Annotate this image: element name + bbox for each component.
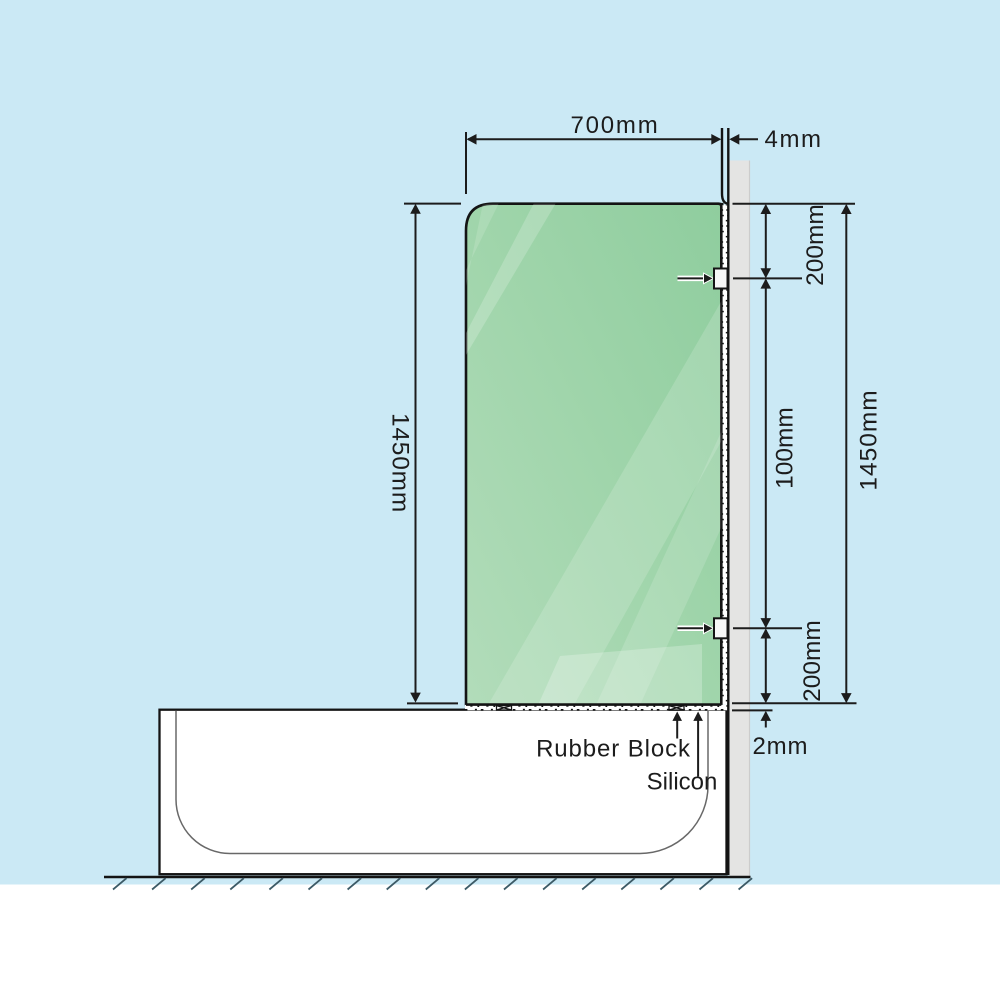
svg-text:200mm: 200mm: [802, 204, 829, 286]
svg-text:100mm: 100mm: [772, 407, 799, 489]
svg-text:Rubber Block: Rubber Block: [536, 736, 691, 763]
svg-text:1450mm: 1450mm: [387, 413, 414, 513]
svg-text:200mm: 200mm: [799, 620, 826, 702]
svg-text:700mm: 700mm: [570, 112, 659, 139]
svg-text:Silicon: Silicon: [647, 769, 718, 796]
svg-text:2mm: 2mm: [753, 733, 809, 760]
svg-text:1450mm: 1450mm: [856, 389, 883, 490]
svg-text:4mm: 4mm: [765, 126, 823, 153]
